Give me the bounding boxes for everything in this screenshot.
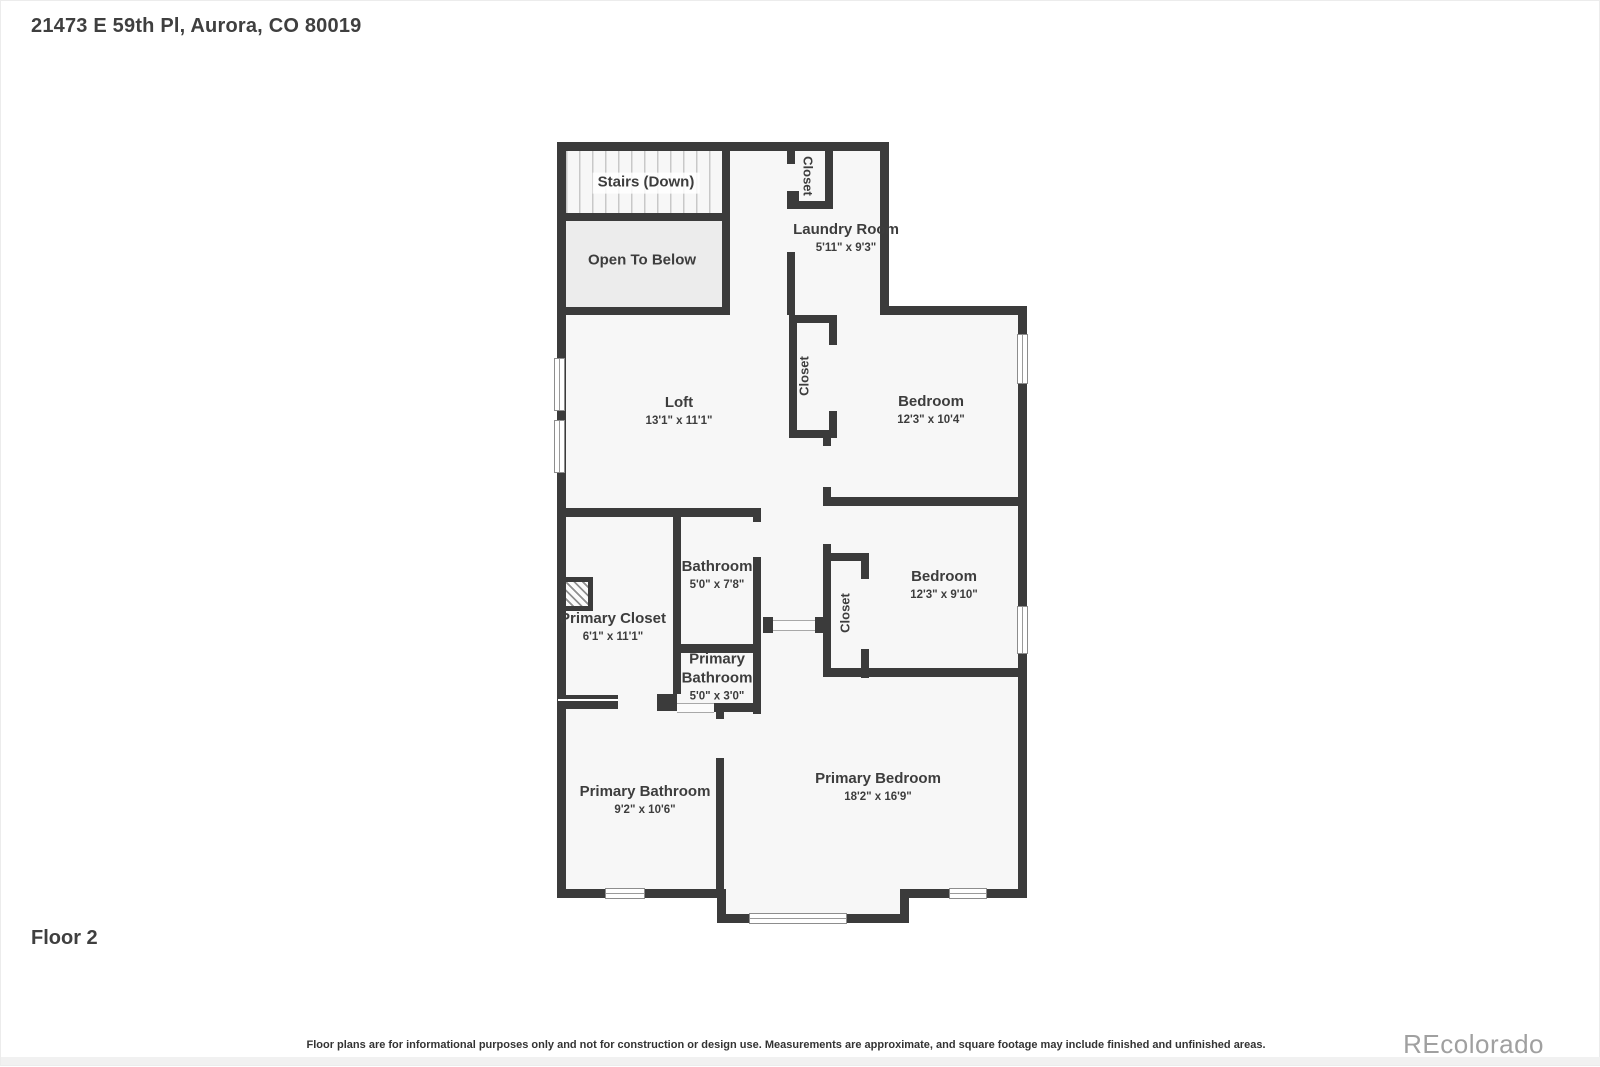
vanity-fixture [558, 695, 618, 709]
room-name: Stairs (Down) [598, 174, 695, 193]
room-dims: 13'1" x 11'1" [646, 414, 713, 428]
room-name: Loft [646, 394, 713, 413]
disclaimer-text: Floor plans are for informational purpos… [1, 1039, 1571, 1051]
room-name: Bedroom [910, 568, 978, 587]
room-label-laundry: Laundry Room 5'11" x 9'3" [793, 221, 899, 255]
room-name: Primary Bathroom [674, 651, 760, 689]
wall [823, 553, 831, 677]
window [749, 913, 847, 924]
room-name: Primary Bedroom [815, 770, 941, 789]
shower-fixture [561, 577, 593, 611]
room-dims: 12'3" x 10'4" [897, 413, 965, 427]
room-dims: 5'0" x 7'8" [682, 578, 753, 592]
room-dims: 5'11" x 9'3" [793, 241, 899, 255]
wall [1018, 306, 1027, 898]
wall [825, 142, 833, 209]
floor-plan: Stairs (Down) Open To Below Laundry Room… [1, 1, 1600, 1067]
window [605, 888, 645, 899]
wall [716, 703, 724, 719]
wall [763, 617, 773, 633]
floor-label: Floor 2 [31, 927, 98, 950]
page-bottom-border [1, 1057, 1600, 1065]
window [1017, 606, 1028, 654]
room-name: Bathroom [682, 558, 753, 577]
room-label-primary-closet: Primary Closet 6'1" x 11'1" [560, 610, 666, 644]
room-label-primary-bathroom: Primary Bathroom 9'2" x 10'6" [580, 783, 711, 817]
closet-label-stairs: Closet [801, 156, 816, 196]
room-label-primary-bedroom: Primary Bedroom 18'2" x 16'9" [815, 770, 941, 804]
room-dims: 6'1" x 11'1" [560, 630, 666, 644]
closet-label-bedroom1: Closet [797, 356, 812, 396]
window [1017, 334, 1028, 384]
room-label-bedroom1: Bedroom 12'3" x 10'4" [897, 393, 965, 427]
wall [753, 508, 761, 522]
room-label-stairs: Stairs (Down) [593, 173, 700, 194]
wall [880, 306, 1027, 315]
room-dims: 18'2" x 16'9" [815, 790, 941, 804]
room-dims: 9'2" x 10'6" [580, 803, 711, 817]
watermark-logo: REcolorado [1403, 1029, 1544, 1060]
room-name: Bedroom [897, 393, 965, 412]
wall [557, 213, 730, 221]
door-opening [677, 703, 714, 713]
wall [557, 508, 761, 517]
wall [716, 758, 724, 890]
room-name: Primary Bathroom [580, 783, 711, 802]
wall [787, 252, 795, 315]
room-label-bedroom2: Bedroom 12'3" x 9'10" [910, 568, 978, 602]
room-dims: 12'3" x 9'10" [910, 588, 978, 602]
window [949, 888, 987, 899]
room-name: Primary Closet [560, 610, 666, 629]
wall [823, 497, 1027, 506]
wall [823, 430, 831, 446]
room-label-loft: Loft 13'1" x 11'1" [646, 394, 713, 428]
wall [829, 315, 837, 345]
wall [557, 142, 566, 898]
wall [557, 307, 730, 315]
wall [861, 554, 869, 579]
floor-plan-page: { "header": { "title": "21473 E 59th Pl,… [0, 0, 1600, 1066]
wall [787, 142, 795, 164]
wall [722, 142, 730, 315]
room-dims: 5'0" x 3'0" [674, 689, 760, 703]
closet-label-bedroom2: Closet [838, 593, 853, 633]
door-opening [773, 620, 815, 631]
wall [815, 617, 825, 633]
wall [823, 668, 1027, 677]
room-label-open-to-below: Open To Below [588, 252, 696, 271]
room-name: Open To Below [588, 252, 696, 271]
room-name: Laundry Room [793, 221, 899, 240]
window [554, 358, 565, 411]
room-label-bathroom: Bathroom 5'0" x 7'8" [682, 558, 753, 592]
window [554, 420, 565, 473]
room-label-primary-bathroom-small: Primary Bathroom 5'0" x 3'0" [674, 651, 760, 704]
